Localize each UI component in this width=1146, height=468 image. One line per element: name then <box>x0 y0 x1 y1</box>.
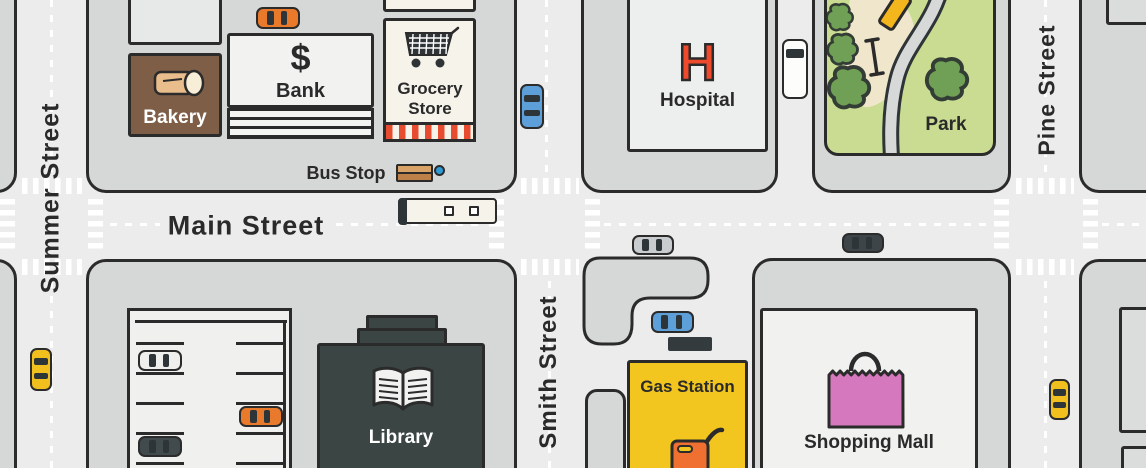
parked-car-orange-bank <box>256 7 300 29</box>
summer-street-label: Summer Street <box>37 103 66 294</box>
main-street-label: Main Street <box>168 211 325 242</box>
parked-car-white <box>138 350 182 371</box>
bus-main-street <box>398 198 497 224</box>
car-grey-main-street <box>632 235 674 255</box>
taxi-summer-street <box>30 348 52 391</box>
taxi-pine-street <box>1049 379 1070 420</box>
parked-car-black <box>138 436 182 457</box>
car-blue-smith-street <box>520 84 544 129</box>
parked-car-orange <box>239 406 283 427</box>
pine-street-label: Pine Street <box>1034 24 1061 155</box>
smith-street-label: Smith Street <box>535 295 563 448</box>
car-black-main-street <box>842 233 884 253</box>
car-blue-gas-station <box>651 311 694 333</box>
town-map: Bakery $ Bank Grocery Store H Hospital <box>0 0 1146 468</box>
ambulance-van <box>782 39 808 99</box>
bus-windshield <box>398 198 407 225</box>
